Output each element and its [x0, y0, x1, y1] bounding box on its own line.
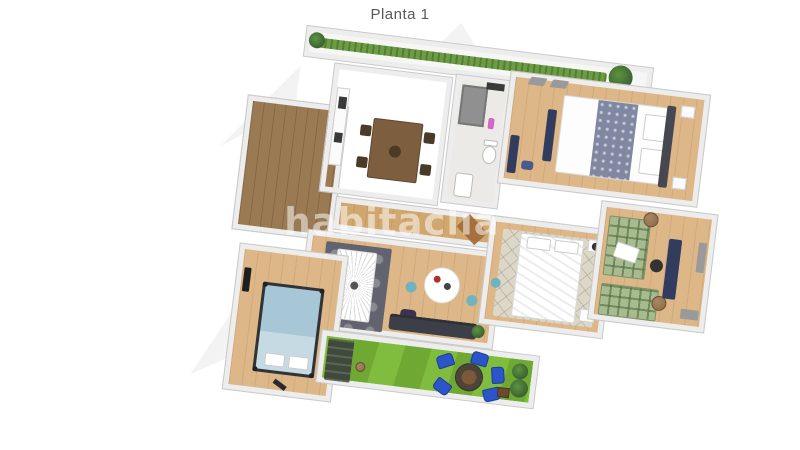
coffee-table	[422, 265, 462, 305]
bathroom-sink	[453, 172, 474, 198]
page-title: Planta 1	[0, 6, 800, 23]
towel	[487, 118, 494, 130]
decor-red	[433, 275, 441, 283]
pillow	[526, 236, 551, 251]
room-bathroom	[441, 75, 512, 209]
desk	[662, 239, 682, 300]
tv	[242, 267, 252, 292]
white-bed	[511, 233, 585, 324]
pillow	[554, 240, 579, 255]
outdoor-chair	[431, 376, 452, 397]
outdoor-chair	[435, 352, 455, 370]
kitchen-counter	[328, 87, 350, 166]
master-bed	[555, 95, 676, 186]
room-kitchen-dining	[320, 64, 453, 205]
dresser	[506, 135, 520, 174]
desk-chair	[649, 259, 663, 273]
room-bedroom-kids	[588, 201, 718, 332]
duvet-runner	[589, 100, 638, 180]
cooktop-icon	[338, 96, 347, 109]
dining-chair	[419, 164, 431, 176]
stool	[466, 294, 478, 306]
terrace-garden	[316, 330, 539, 408]
living-plant	[471, 324, 485, 338]
table-centerpiece	[350, 281, 359, 290]
planter-box	[497, 387, 510, 398]
bedpost	[309, 373, 315, 379]
bathroom-shelf	[486, 82, 505, 91]
bedpost	[319, 288, 325, 294]
blue-bed	[252, 282, 325, 379]
nightstand	[671, 177, 686, 191]
open-door	[457, 214, 488, 245]
pillow	[612, 241, 640, 264]
garden-bush	[509, 378, 529, 398]
stool	[405, 281, 417, 293]
room-master-bedroom	[498, 71, 710, 207]
dining-chair	[423, 132, 435, 144]
dining-table	[367, 118, 424, 184]
skylight-window	[550, 79, 570, 89]
bedpost	[252, 366, 258, 372]
bedpost	[263, 282, 269, 288]
outdoor-chair	[491, 366, 505, 384]
sofa	[388, 313, 477, 340]
floor-plan-viewer: Planta 1	[0, 0, 800, 450]
toilet-bowl	[481, 145, 497, 165]
dining-chair	[360, 124, 372, 136]
outdoor-table	[453, 362, 484, 393]
kids-bed	[602, 215, 651, 280]
skylight-window	[528, 77, 548, 87]
gallery-windows	[338, 69, 447, 96]
garden-bush	[511, 363, 529, 381]
nightstand	[680, 105, 695, 119]
dog	[355, 361, 366, 372]
kids-bed	[598, 283, 659, 322]
tv	[695, 242, 707, 273]
dining-chair	[356, 156, 368, 168]
shower	[458, 84, 489, 127]
decor-dark	[443, 283, 451, 291]
pillow	[288, 355, 309, 370]
clothes-on-floor	[521, 160, 534, 170]
centerpiece-plant	[388, 145, 401, 158]
dresser-top	[680, 309, 699, 321]
remote-on-floor	[273, 379, 287, 391]
garden-bench	[324, 338, 355, 383]
floor-plan	[202, 9, 747, 450]
sink-unit-icon	[334, 132, 343, 143]
pillow	[264, 352, 285, 367]
